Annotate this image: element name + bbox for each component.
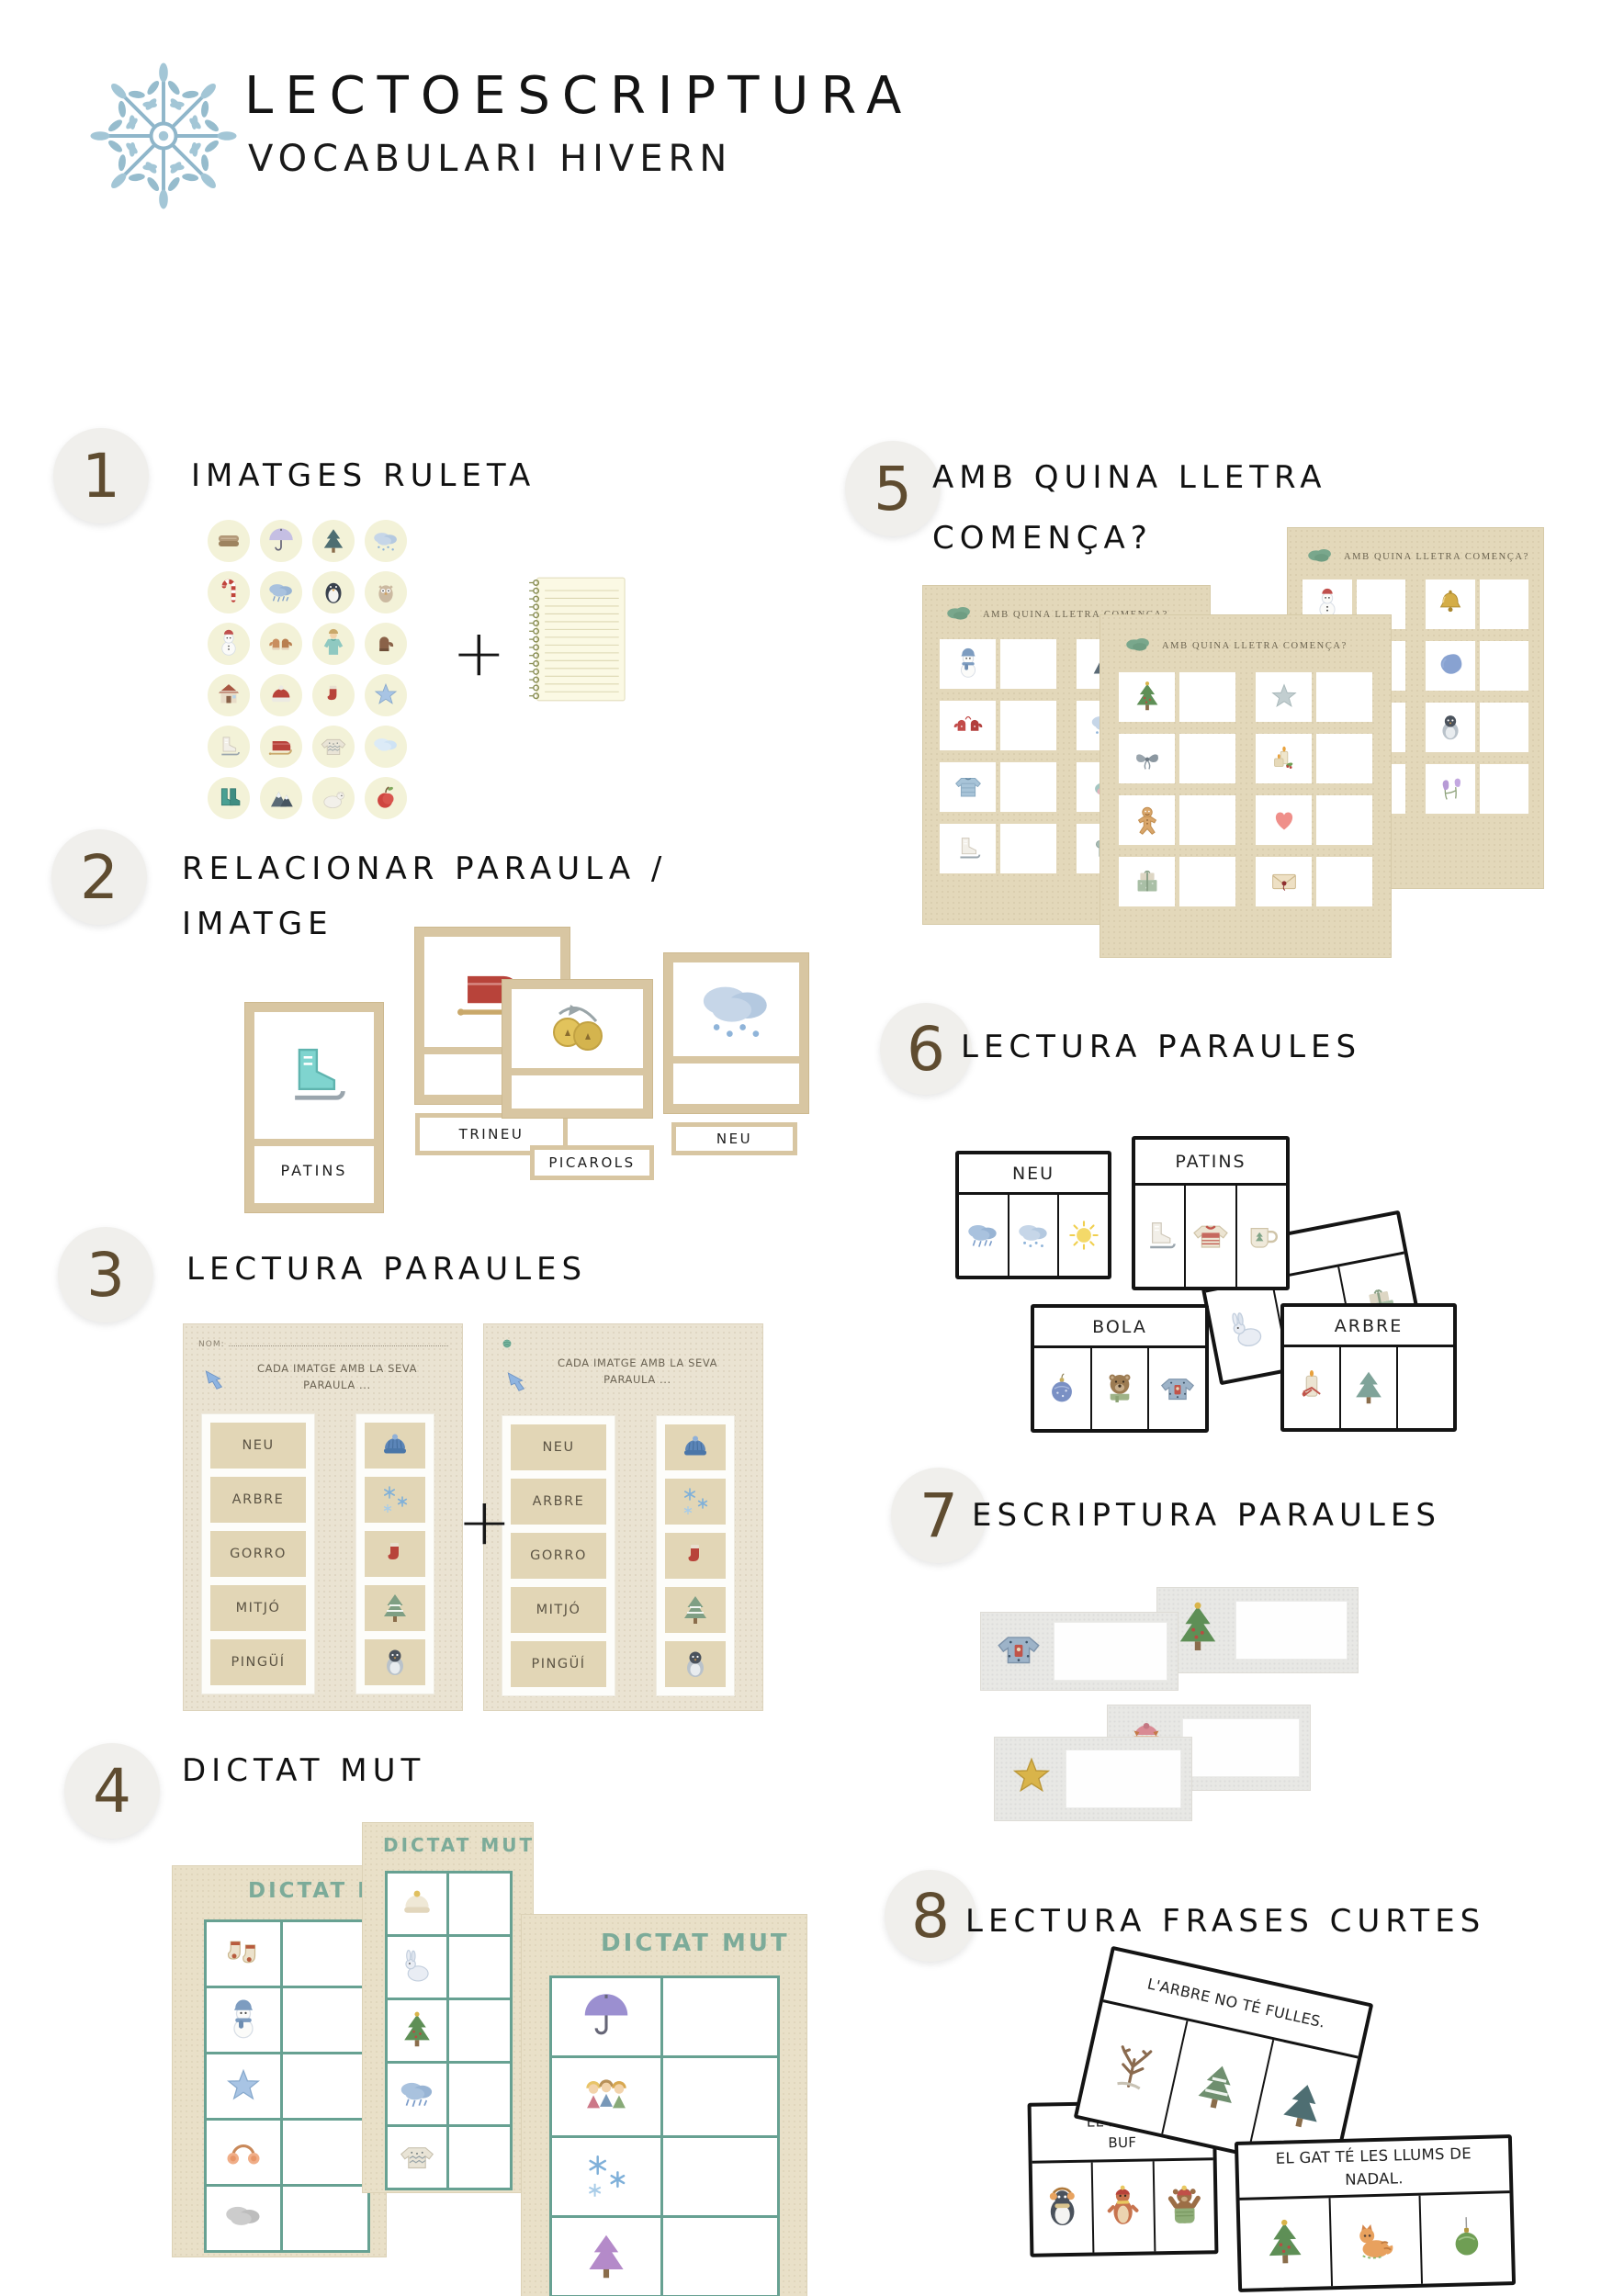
word-box: GORRO bbox=[210, 1531, 306, 1577]
section-8-title: LECTURA FRASES CURTES bbox=[965, 1903, 1485, 1940]
cloud-icon bbox=[943, 597, 975, 632]
cat-icon bbox=[1348, 2213, 1403, 2268]
blank-cell bbox=[1316, 672, 1372, 722]
letter-pair bbox=[1119, 734, 1235, 783]
white-sweater-item bbox=[312, 726, 355, 768]
penguin-chick-icon bbox=[1433, 710, 1468, 745]
snowman-icon bbox=[213, 628, 244, 659]
word-box: ARBRE bbox=[511, 1479, 606, 1525]
letter-pair bbox=[940, 701, 1056, 750]
candy-cane-icon bbox=[213, 577, 244, 608]
card-image-cell bbox=[1284, 1347, 1339, 1428]
mittens-icon bbox=[265, 628, 297, 659]
image-cell bbox=[1119, 672, 1175, 722]
dictat-blank-cell bbox=[283, 1922, 367, 1986]
worksheet-instruction: CADA IMATGE AMB LA SEVA PARAULA ... bbox=[541, 1356, 734, 1389]
penguin-chick-icon bbox=[677, 1646, 714, 1683]
nom-label: NOM: bbox=[198, 1340, 225, 1349]
umbrella-purple-icon bbox=[578, 1988, 635, 2045]
image-column bbox=[356, 1414, 434, 1694]
teal-tree-icon bbox=[1348, 1367, 1390, 1409]
image-cell bbox=[1256, 734, 1312, 783]
dictat-blank-cell bbox=[449, 2127, 510, 2188]
card-image-cell bbox=[1135, 1186, 1184, 1287]
blank-cell bbox=[1000, 701, 1056, 750]
image-cell bbox=[1426, 703, 1475, 752]
card-cells bbox=[1284, 1347, 1453, 1428]
white-sweater-icon bbox=[318, 731, 349, 762]
snow-cloud-icon bbox=[370, 525, 401, 557]
rain-cloud-icon bbox=[396, 2073, 438, 2115]
bear-hat-icon bbox=[1159, 2180, 1210, 2231]
yarn-icon bbox=[497, 1334, 517, 1357]
gift-icon bbox=[1130, 864, 1165, 899]
blank-cell bbox=[1480, 764, 1529, 814]
dictat-image-cell bbox=[388, 2064, 446, 2124]
apple-icon bbox=[370, 782, 401, 814]
arrow-icon bbox=[200, 1363, 233, 1400]
dictat-blank-cell bbox=[283, 2121, 367, 2184]
christmas-tree-icon bbox=[396, 2009, 438, 2052]
card-image-cell bbox=[1240, 2198, 1331, 2288]
card-image-cell bbox=[1032, 2163, 1093, 2254]
picarols-image bbox=[512, 989, 643, 1068]
dictat-image-cell bbox=[207, 1922, 280, 1986]
card-image-cell bbox=[1184, 1186, 1235, 1287]
pine-tree-item bbox=[312, 520, 355, 562]
section-2-badge: 2 bbox=[51, 829, 147, 925]
blue-star-item bbox=[365, 674, 407, 716]
card-cells bbox=[1240, 2193, 1512, 2289]
section-6-badge: 6 bbox=[880, 1003, 972, 1095]
blank-cell bbox=[1316, 734, 1372, 783]
earmuffs-icon bbox=[220, 2130, 266, 2176]
image-column bbox=[657, 1416, 734, 1695]
dictat-sheet-1: DICTAT MUT bbox=[173, 1866, 386, 2257]
writing-strip-tree bbox=[1157, 1588, 1358, 1672]
card-image-cell bbox=[1034, 1348, 1090, 1429]
blank-cell bbox=[1179, 795, 1235, 845]
bell-gold-icon bbox=[1433, 587, 1468, 622]
image-cell bbox=[1256, 857, 1312, 906]
ruleta-image-grid bbox=[208, 520, 407, 819]
gingerbread-icon bbox=[1130, 803, 1165, 838]
owl-item bbox=[365, 571, 407, 613]
heart-icon bbox=[1267, 803, 1302, 838]
white-skates-icon bbox=[1138, 1214, 1182, 1258]
section-2-title-line1: RELACIONAR PARAULA / bbox=[182, 850, 667, 887]
card-image-cell bbox=[1147, 1348, 1205, 1429]
section-4-badge: 4 bbox=[64, 1743, 160, 1839]
white-skates-item bbox=[208, 726, 250, 768]
image-box bbox=[365, 1477, 425, 1523]
candle-bow-icon bbox=[1291, 1367, 1333, 1409]
image-cell bbox=[1119, 795, 1175, 845]
apple-item bbox=[365, 777, 407, 819]
card-image-cell bbox=[1339, 1347, 1396, 1428]
card-label-patins: PATINS bbox=[254, 1139, 374, 1194]
snowflake-logo-icon bbox=[81, 53, 246, 219]
mountains-icon bbox=[265, 782, 297, 814]
blanket-icon bbox=[213, 525, 244, 557]
green-yarn-icon bbox=[497, 1334, 517, 1354]
blue-star-icon bbox=[220, 2064, 266, 2110]
red-sock-icon bbox=[377, 1536, 413, 1572]
cloud-icon bbox=[1122, 628, 1154, 663]
sheet-header: AMB QUINA LLETRA COMENÇA? bbox=[1122, 628, 1348, 663]
snow-cloud-item bbox=[365, 520, 407, 562]
writing-strip-sweater bbox=[981, 1613, 1178, 1690]
dictat-grid bbox=[204, 1919, 370, 2253]
word-box: ARBRE bbox=[210, 1477, 306, 1523]
image-cell bbox=[1119, 857, 1175, 906]
polar-bear-item bbox=[312, 777, 355, 819]
dictat-blank-cell bbox=[663, 2218, 777, 2295]
patins-image bbox=[254, 1012, 374, 1139]
writing-box bbox=[1183, 1719, 1299, 1776]
notebook-icon bbox=[511, 575, 639, 703]
dictat-blank-cell bbox=[449, 2000, 510, 2061]
beanie-blue-icon bbox=[377, 1427, 413, 1464]
gold-star-icon bbox=[1006, 1751, 1057, 1803]
white-hat-icon bbox=[396, 1883, 438, 1925]
rain-cloud-item bbox=[260, 571, 302, 613]
coat-icon bbox=[318, 628, 349, 659]
blank-cell bbox=[1480, 580, 1529, 629]
ornament-icon bbox=[1041, 1367, 1083, 1410]
image-box bbox=[665, 1641, 726, 1687]
brown-mitt-item bbox=[365, 623, 407, 665]
sled-icon bbox=[265, 731, 297, 762]
green-cloud-icon bbox=[943, 597, 975, 628]
ice-cloud-icon bbox=[370, 731, 401, 762]
red-mittens-icon bbox=[951, 708, 986, 743]
blue-sweater-icon bbox=[992, 1623, 1045, 1676]
bow-icon bbox=[1130, 741, 1165, 776]
letter-pair bbox=[940, 762, 1056, 812]
card-image-cell bbox=[1057, 1195, 1108, 1276]
image-cell bbox=[940, 824, 996, 873]
image-box bbox=[365, 1531, 425, 1577]
green-cloud-icon bbox=[1304, 539, 1336, 570]
card-image-cell bbox=[1419, 2193, 1512, 2284]
blue-arrow-icon bbox=[502, 1365, 536, 1398]
page: LECTOESCRIPTURA VOCABULARI HIVERN 1 IMAT… bbox=[0, 0, 1624, 2296]
umbrella-item bbox=[260, 520, 302, 562]
section-1-badge: 1 bbox=[53, 428, 149, 523]
writing-box bbox=[1236, 1602, 1347, 1659]
letter-pair bbox=[1426, 703, 1528, 752]
letter-pair bbox=[1256, 734, 1372, 783]
envelope-icon bbox=[1267, 864, 1302, 899]
word-column: NEUARBREGORROMITJÓPINGÜÍ bbox=[502, 1416, 615, 1695]
image-cell bbox=[940, 639, 996, 689]
letter-pair bbox=[1426, 764, 1528, 814]
card-image-cell bbox=[1152, 2160, 1214, 2251]
kids-icon bbox=[578, 2068, 635, 2125]
flowers-icon bbox=[1433, 771, 1468, 806]
word-column: NEUARBREGORROMITJÓPINGÜÍ bbox=[202, 1414, 314, 1694]
dictat-image-cell bbox=[207, 1988, 280, 2052]
snowy-tree-icon bbox=[677, 1592, 714, 1628]
card-image-cell bbox=[1091, 2161, 1154, 2252]
sled-item bbox=[260, 726, 302, 768]
red-beanie-item bbox=[260, 674, 302, 716]
snowflake-logo-icon bbox=[81, 53, 246, 219]
image-cell bbox=[1426, 580, 1475, 629]
dictat-blank-cell bbox=[449, 2064, 510, 2124]
word-box: PINGÜÍ bbox=[511, 1641, 606, 1687]
card-image-cell bbox=[1235, 1186, 1286, 1287]
card-picarols bbox=[502, 980, 652, 1118]
blanket-item bbox=[208, 520, 250, 562]
snowflakes-icon bbox=[578, 2148, 635, 2205]
word-box: MITJÓ bbox=[511, 1587, 606, 1633]
image-box bbox=[365, 1639, 425, 1685]
dictat-blank-cell bbox=[449, 1874, 510, 1934]
pine-tree-icon bbox=[318, 525, 349, 557]
worksheet-instruction: CADA IMATGE AMB LA SEVA PARAULA ... bbox=[241, 1361, 434, 1394]
purple-tree-icon bbox=[578, 2228, 635, 2285]
beanie-blue-icon bbox=[677, 1429, 714, 1466]
ice-cloud-item bbox=[365, 726, 407, 768]
snowy-tree-icon bbox=[377, 1590, 413, 1626]
letter-grid bbox=[1119, 672, 1372, 906]
dictat-blank-cell bbox=[283, 2187, 367, 2250]
penguin-chick-icon bbox=[377, 1644, 413, 1681]
green-ornament-icon bbox=[1439, 2212, 1494, 2266]
blank-cell bbox=[1480, 703, 1529, 752]
red-beanie-icon bbox=[265, 680, 297, 711]
section-6-title: LECTURA PARAULES bbox=[961, 1029, 1361, 1065]
white-sweater-icon bbox=[396, 2136, 438, 2178]
word-box: PINGÜÍ bbox=[210, 1639, 306, 1685]
sentence-card-gat: EL GAT TÉ LES LLUMS DE NADAL. bbox=[1235, 2134, 1516, 2292]
card-image-cell bbox=[1008, 1195, 1058, 1276]
green-boots-icon bbox=[213, 782, 244, 814]
empty-slot bbox=[673, 1056, 799, 1097]
image-cell bbox=[1426, 641, 1475, 691]
rabbit-icon bbox=[396, 1946, 438, 1988]
snowman-scarf-icon bbox=[220, 1998, 266, 2043]
coat-item bbox=[312, 623, 355, 665]
dictat-image-cell bbox=[552, 2138, 660, 2215]
sun-icon bbox=[1065, 1216, 1103, 1255]
white-skates-icon bbox=[213, 731, 244, 762]
letter-pair bbox=[1256, 857, 1372, 906]
house-icon bbox=[213, 680, 244, 711]
dictat-sheet-3: DICTAT MUT bbox=[522, 1915, 806, 2296]
empty-slot bbox=[512, 1068, 643, 1109]
blank-cell bbox=[1000, 639, 1056, 689]
blank-cell bbox=[1179, 857, 1235, 906]
skates-teal-icon bbox=[271, 1032, 358, 1120]
letter-pair bbox=[940, 639, 1056, 689]
red-sock-icon bbox=[318, 680, 349, 711]
image-cell bbox=[1119, 734, 1175, 783]
letter-pair bbox=[1426, 641, 1528, 691]
card-cells bbox=[1135, 1186, 1286, 1287]
card-neu bbox=[664, 953, 808, 1113]
letter-pair bbox=[1256, 672, 1372, 722]
dictat-image-cell bbox=[207, 2121, 280, 2184]
word-card-patins: PATINS bbox=[1132, 1136, 1290, 1290]
green-cloud-icon bbox=[1122, 628, 1154, 659]
image-box bbox=[665, 1479, 726, 1525]
section-1-title: IMATGES RULETA bbox=[191, 457, 536, 494]
dictat-image-cell bbox=[207, 2187, 280, 2250]
letter-pair bbox=[1119, 672, 1235, 722]
dictat-image-cell bbox=[388, 2127, 446, 2188]
letter-pair bbox=[1119, 795, 1235, 845]
section-5-title-line1: AMB QUINA LLETRA bbox=[932, 459, 1327, 496]
blank-cell bbox=[1000, 824, 1056, 873]
section-3-title: LECTURA PARAULES bbox=[186, 1251, 587, 1288]
dictat-image-cell bbox=[388, 1874, 446, 1934]
bare-tree-icon bbox=[1099, 2034, 1167, 2102]
dictat-blank-cell bbox=[283, 1988, 367, 2052]
worksheet-lectura-2: CADA IMATGE AMB LA SEVA PARAULA ... NEUA… bbox=[484, 1324, 762, 1710]
sheet-header: AMB QUINA LLETRA COMENÇA? bbox=[1304, 539, 1529, 574]
green-boots-item bbox=[208, 777, 250, 819]
blue-jacket-icon bbox=[951, 770, 986, 805]
arrow-icon bbox=[502, 1365, 536, 1401]
blank-cell bbox=[1000, 762, 1056, 812]
otter-icon bbox=[1099, 2182, 1149, 2233]
penguin-item bbox=[312, 571, 355, 613]
card-label-picarols: PICAROLS bbox=[530, 1145, 654, 1180]
candles-icon bbox=[1267, 741, 1302, 776]
gray-cloud-icon bbox=[220, 2196, 266, 2242]
writing-strip-star bbox=[995, 1738, 1191, 1820]
snow-cloud-icon bbox=[1014, 1216, 1053, 1255]
dictat-sheet-2: DICTAT MUT bbox=[363, 1823, 533, 2192]
dictat-grid bbox=[385, 1871, 513, 2190]
section-4-title: DICTAT MUT bbox=[182, 1752, 425, 1789]
strip-image bbox=[992, 1623, 1045, 1680]
word-card-neu: NEU bbox=[955, 1151, 1111, 1279]
card-cells bbox=[1032, 2160, 1215, 2253]
image-box bbox=[665, 1533, 726, 1579]
section-5-badge: 5 bbox=[845, 441, 941, 536]
mittens-item bbox=[260, 623, 302, 665]
dictat-blank-cell bbox=[663, 2058, 777, 2135]
plus-sign-1: + bbox=[452, 621, 506, 685]
worksheet-lectura-1: NOM: CADA IMATGE AMB LA SEVA PARAULA ...… bbox=[184, 1324, 462, 1710]
section-8-badge: 8 bbox=[885, 1870, 976, 1962]
umbrella-icon bbox=[265, 525, 297, 557]
word-box: GORRO bbox=[511, 1533, 606, 1579]
image-cell bbox=[1256, 672, 1312, 722]
word-card-bola: BOLA bbox=[1031, 1304, 1209, 1433]
section-3-badge: 3 bbox=[58, 1227, 153, 1322]
mountains-item bbox=[260, 777, 302, 819]
section-5-title-line2: COMENÇA? bbox=[932, 520, 1153, 557]
mug-icon bbox=[1239, 1214, 1283, 1258]
christmas-tree-icon bbox=[1130, 680, 1165, 715]
blue-arrow-icon bbox=[200, 1363, 233, 1396]
blank-cell bbox=[1316, 857, 1372, 906]
red-sock-item bbox=[312, 674, 355, 716]
red-sweater-icon bbox=[1189, 1214, 1233, 1258]
page-subtitle: VOCABULARI HIVERN bbox=[248, 138, 732, 180]
image-box bbox=[665, 1424, 726, 1470]
card-label-neu: NEU bbox=[671, 1122, 797, 1155]
penguin-earmuffs-icon bbox=[1037, 2183, 1088, 2234]
cloud-icon bbox=[1304, 539, 1336, 574]
writing-box bbox=[1066, 1750, 1180, 1807]
rain-cloud-icon bbox=[265, 577, 297, 608]
image-box bbox=[365, 1585, 425, 1631]
blank-cell bbox=[1179, 734, 1235, 783]
strip-image bbox=[1006, 1751, 1057, 1806]
bells-icon bbox=[541, 992, 615, 1065]
candy-cane-item bbox=[208, 571, 250, 613]
snowflakes-icon bbox=[677, 1483, 714, 1520]
card-image-cell bbox=[959, 1195, 1008, 1276]
card-image-cell bbox=[1396, 1347, 1453, 1428]
snowman-scarf-icon bbox=[951, 647, 986, 681]
dictat-image-cell bbox=[388, 1937, 446, 1998]
image-cell bbox=[1256, 795, 1312, 845]
gray-star-icon bbox=[1267, 680, 1302, 715]
snowflakes-icon bbox=[377, 1481, 413, 1518]
dictat-image-cell bbox=[552, 2058, 660, 2135]
house-item bbox=[208, 674, 250, 716]
penguin-icon bbox=[318, 577, 349, 608]
dictat-image-cell bbox=[552, 2218, 660, 2295]
polar-bear-icon bbox=[318, 782, 349, 814]
letter-pair bbox=[940, 824, 1056, 873]
blank-cell bbox=[1316, 795, 1372, 845]
white-skates-icon bbox=[951, 831, 986, 866]
dictat-grid bbox=[549, 1975, 780, 2296]
brown-mitt-icon bbox=[370, 628, 401, 659]
dictat-image-cell bbox=[207, 2054, 280, 2118]
letter-pair bbox=[1426, 580, 1528, 629]
dictat-blank-cell bbox=[663, 2138, 777, 2215]
blue-star-icon bbox=[370, 680, 401, 711]
snowy-pine-icon bbox=[1184, 2053, 1252, 2121]
dictat-blank-cell bbox=[663, 1978, 777, 2055]
snowman-item bbox=[208, 623, 250, 665]
image-box bbox=[365, 1423, 425, 1469]
card-image-cell bbox=[1090, 1348, 1148, 1429]
blue-blob-icon bbox=[1433, 648, 1468, 683]
bear-icon bbox=[1099, 1367, 1141, 1410]
dictat-blank-cell bbox=[283, 2054, 367, 2118]
word-card-arbre: ARBRE bbox=[1280, 1303, 1457, 1432]
plus-sign-2: + bbox=[457, 1490, 512, 1554]
red-sock-icon bbox=[677, 1537, 714, 1574]
dictat-image-cell bbox=[388, 2000, 446, 2061]
sentence-text: EL GAT TÉ LES LLUMS DE NADAL. bbox=[1238, 2138, 1509, 2200]
dictat-blank-cell bbox=[449, 1937, 510, 1998]
image-cell bbox=[1426, 764, 1475, 814]
notebook-icon bbox=[511, 575, 639, 707]
image-cell bbox=[940, 762, 996, 812]
letter-pair bbox=[1256, 795, 1372, 845]
card-cells bbox=[1034, 1348, 1205, 1429]
owl-icon bbox=[370, 577, 401, 608]
rabbit-icon bbox=[1219, 1302, 1275, 1358]
image-cell bbox=[940, 701, 996, 750]
blank-cell bbox=[1480, 641, 1529, 691]
word-box: NEU bbox=[511, 1424, 606, 1470]
pine-tree-icon bbox=[1269, 2072, 1337, 2140]
letter-pair bbox=[1119, 857, 1235, 906]
christmas-tree-icon bbox=[1257, 2216, 1312, 2270]
